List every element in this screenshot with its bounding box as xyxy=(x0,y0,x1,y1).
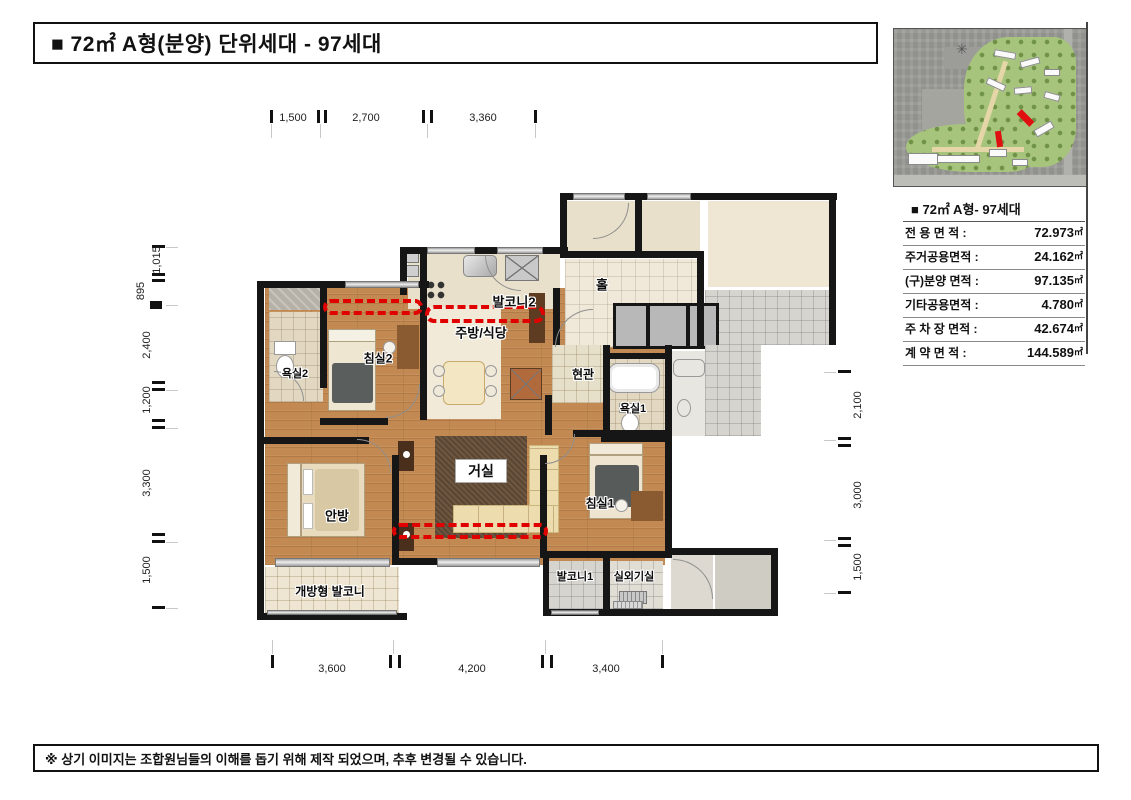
neighbor-balcony xyxy=(715,555,771,611)
dim-label: 2,700 xyxy=(352,112,380,124)
window xyxy=(427,247,475,254)
room-label-living: 거실 xyxy=(468,461,494,481)
dim-tick xyxy=(838,370,851,373)
floor-plan: 발코니2 주방/식당 침실2 욕실2 현관 욕실1 홀 거실 안방 침실1 개방… xyxy=(257,193,837,655)
row-value: 4.780㎡ xyxy=(1041,297,1083,312)
dim-label: 1,500 xyxy=(141,556,153,584)
dining-table xyxy=(443,361,485,405)
site-plan-map: ✳ xyxy=(893,28,1087,187)
dim-guide xyxy=(393,640,394,654)
wall xyxy=(420,254,427,420)
map-road xyxy=(894,175,1086,186)
dim-label: 3,400 xyxy=(592,663,620,675)
wall xyxy=(392,455,399,565)
dim-guide xyxy=(271,124,272,138)
row-label: 주 차 장 면적 : xyxy=(905,320,978,337)
footer-box: ※ 상기 이미지는 조합원님들의 이해를 돕기 위해 제작 되었으며, 추후 변… xyxy=(33,744,1099,772)
dim-guide xyxy=(166,428,178,429)
window xyxy=(275,558,390,567)
wall xyxy=(601,436,667,442)
dim-tick xyxy=(389,655,392,668)
table-row: 기타공용면적 :4.780㎡ xyxy=(903,294,1085,318)
dim-label: 1,500 xyxy=(852,553,864,581)
dim-tick xyxy=(838,544,851,547)
dim-label: 3,600 xyxy=(318,663,346,675)
dim-guide xyxy=(166,542,178,543)
desk1 xyxy=(631,491,663,521)
room-label-entrance: 현관 xyxy=(572,366,594,383)
table-row: 전 용 면 적 :72.973㎡ xyxy=(903,222,1085,246)
room-label-balcony2: 발코니2 xyxy=(492,292,535,311)
dim-tick xyxy=(838,537,851,540)
desk2 xyxy=(397,325,419,369)
elevator xyxy=(613,303,649,349)
dim-guide xyxy=(824,540,836,541)
core-corridor xyxy=(705,290,832,345)
dim-guide xyxy=(166,608,178,609)
page-title: ■ 72㎡ A형(분양) 단위세대 - 97세대 xyxy=(51,28,382,58)
window xyxy=(437,558,540,567)
dim-tick xyxy=(422,110,425,123)
compass-icon: ✳ xyxy=(956,41,968,58)
wall xyxy=(603,558,610,615)
wall xyxy=(829,193,836,345)
window xyxy=(647,193,691,200)
table-row: 계 약 면 적 :144.589㎡ xyxy=(903,342,1085,366)
row-value: 42.674㎡ xyxy=(1034,321,1083,336)
wall xyxy=(635,200,642,251)
dim-guide xyxy=(166,305,178,306)
room-label-hall: 홀 xyxy=(596,275,608,294)
table-row: (구)분양 면적 :97.135㎡ xyxy=(903,270,1085,294)
row-value: 72.973㎡ xyxy=(1034,225,1083,240)
dim-guide xyxy=(320,124,321,138)
disclaimer-text: ※ 상기 이미지는 조합원님들의 이해를 돕기 위해 제작 되었으며, 추후 변… xyxy=(45,749,527,768)
toilet-tank xyxy=(274,341,296,355)
dim-tick xyxy=(152,381,165,384)
title-box: ■ 72㎡ A형(분양) 단위세대 - 97세대 xyxy=(33,22,878,64)
dim-tick xyxy=(152,533,165,536)
dim-tick xyxy=(271,655,274,668)
map-building xyxy=(908,153,938,165)
neighbor-toilet-outline xyxy=(677,399,691,417)
wall xyxy=(603,353,665,359)
wall xyxy=(545,395,552,435)
wall xyxy=(257,281,351,288)
panel-divider xyxy=(1086,22,1088,354)
wall xyxy=(257,437,369,444)
floorplan-sheet: { "page": { "title": "■ 72㎡ A형(분양) 단위세대 … xyxy=(0,0,1131,800)
row-value: 24.162㎡ xyxy=(1034,249,1083,264)
wall xyxy=(697,251,704,347)
dim-label: 3,360 xyxy=(469,112,497,124)
dim-tick xyxy=(838,437,851,440)
room-label-master: 안방 xyxy=(325,506,349,525)
wall xyxy=(667,609,775,616)
pantry xyxy=(510,368,542,400)
dim-label: 895 xyxy=(135,282,147,300)
wall xyxy=(543,558,549,616)
dim-guide xyxy=(166,247,178,248)
map-building xyxy=(989,149,1007,157)
dim-tick xyxy=(534,110,537,123)
table-header: ■ 72㎡ A형- 97세대 xyxy=(903,196,1085,222)
row-label: 주거공용면적 : xyxy=(905,248,979,265)
wall xyxy=(320,418,388,425)
chair xyxy=(433,385,445,397)
chair xyxy=(433,365,445,377)
room-label-ac-room: 실외기실 xyxy=(614,568,654,584)
dim-tick xyxy=(541,655,544,668)
bed1-headboard xyxy=(589,443,643,455)
window xyxy=(497,247,543,254)
louver-vent xyxy=(613,601,643,609)
room-label-bathroom1: 욕실1 xyxy=(620,400,646,416)
dim-tick xyxy=(152,426,165,429)
map-building xyxy=(934,155,980,163)
dim-guide xyxy=(824,372,836,373)
chair xyxy=(485,385,497,397)
dim-tick xyxy=(661,655,664,668)
bed2-blanket xyxy=(332,363,373,403)
dim-guide xyxy=(545,640,546,654)
dim-tick xyxy=(550,655,553,668)
dim-tick xyxy=(270,110,273,123)
chair xyxy=(615,499,628,512)
row-label: 기타공용면적 : xyxy=(905,296,979,313)
room-label-balcony1: 발코니1 xyxy=(557,568,593,584)
area-info-table: ■ 72㎡ A형- 97세대 전 용 면 적 :72.973㎡ 주거공용면적 :… xyxy=(903,196,1085,366)
elevator xyxy=(647,303,689,349)
table-row: 주 차 장 면적 :42.674㎡ xyxy=(903,318,1085,342)
dim-guide xyxy=(662,640,663,654)
table-row: 주거공용면적 :24.162㎡ xyxy=(903,246,1085,270)
dim-tick xyxy=(430,110,433,123)
dim-label: 3,000 xyxy=(852,481,864,509)
map-building xyxy=(1012,159,1028,166)
wall xyxy=(771,548,778,616)
row-label: 전 용 면 적 : xyxy=(905,224,967,241)
wall xyxy=(257,281,264,620)
dim-tick xyxy=(838,444,851,447)
row-value: 97.135㎡ xyxy=(1034,273,1083,288)
wall xyxy=(543,551,669,558)
dim-label: 1,200 xyxy=(141,386,153,414)
wall xyxy=(665,345,672,558)
knob xyxy=(403,451,410,458)
dim-tick xyxy=(152,279,165,282)
wall xyxy=(603,345,610,436)
room-label-bedroom1: 침실1 xyxy=(586,495,615,512)
wall xyxy=(667,548,777,555)
dim-guide xyxy=(427,124,428,138)
row-label: 계 약 면 적 : xyxy=(905,344,967,361)
dim-guide xyxy=(824,593,836,594)
dim-guide xyxy=(166,390,178,391)
map-path xyxy=(932,147,1024,152)
window xyxy=(551,610,599,615)
room-label-kitchen: 주방/식당 xyxy=(455,323,506,342)
dim-label: 2,100 xyxy=(852,391,864,419)
dim-label: 2,400 xyxy=(141,331,153,359)
pillow xyxy=(303,503,313,529)
neighbor-room xyxy=(565,201,700,251)
chair xyxy=(485,365,497,377)
window xyxy=(345,281,419,288)
dim-tick xyxy=(838,591,851,594)
pillow xyxy=(303,469,313,495)
dim-tick xyxy=(398,655,401,668)
bathtub xyxy=(608,363,660,393)
dim-tick xyxy=(152,540,165,543)
dim-label: 1,500 xyxy=(279,112,307,124)
dim-tick xyxy=(152,419,165,422)
expansion-dashed-area xyxy=(392,523,548,539)
dim-tick xyxy=(317,110,320,123)
room-label-bathroom2: 욕실2 xyxy=(282,365,308,381)
dim-tick xyxy=(150,301,162,309)
row-value: 144.589㎡ xyxy=(1027,345,1083,360)
window xyxy=(573,193,625,200)
room-label-bedroom2: 침실2 xyxy=(364,350,393,367)
wall xyxy=(563,251,703,258)
dim-tick xyxy=(152,388,165,391)
neighbor-tub-outline xyxy=(673,359,705,377)
wall xyxy=(540,455,547,558)
dim-guide xyxy=(824,440,836,441)
dim-guide xyxy=(535,124,536,138)
dim-label: 1,015 xyxy=(151,246,163,274)
stairwell xyxy=(708,201,829,287)
room-label-open-balcony: 개방형 발코니 xyxy=(295,583,365,600)
wall xyxy=(560,200,567,258)
dim-tick xyxy=(324,110,327,123)
map-building xyxy=(1044,69,1060,76)
dim-tick xyxy=(152,606,165,609)
row-label: (구)분양 면적 : xyxy=(905,272,979,289)
expansion-dashed-area xyxy=(323,299,423,315)
utility-counter xyxy=(269,288,323,310)
dim-label: 4,200 xyxy=(458,663,486,675)
dim-label: 3,300 xyxy=(141,469,153,497)
neighbor-area xyxy=(705,345,761,436)
dim-guide xyxy=(272,640,273,654)
window xyxy=(267,610,397,615)
master-bed-headboard xyxy=(287,463,301,537)
